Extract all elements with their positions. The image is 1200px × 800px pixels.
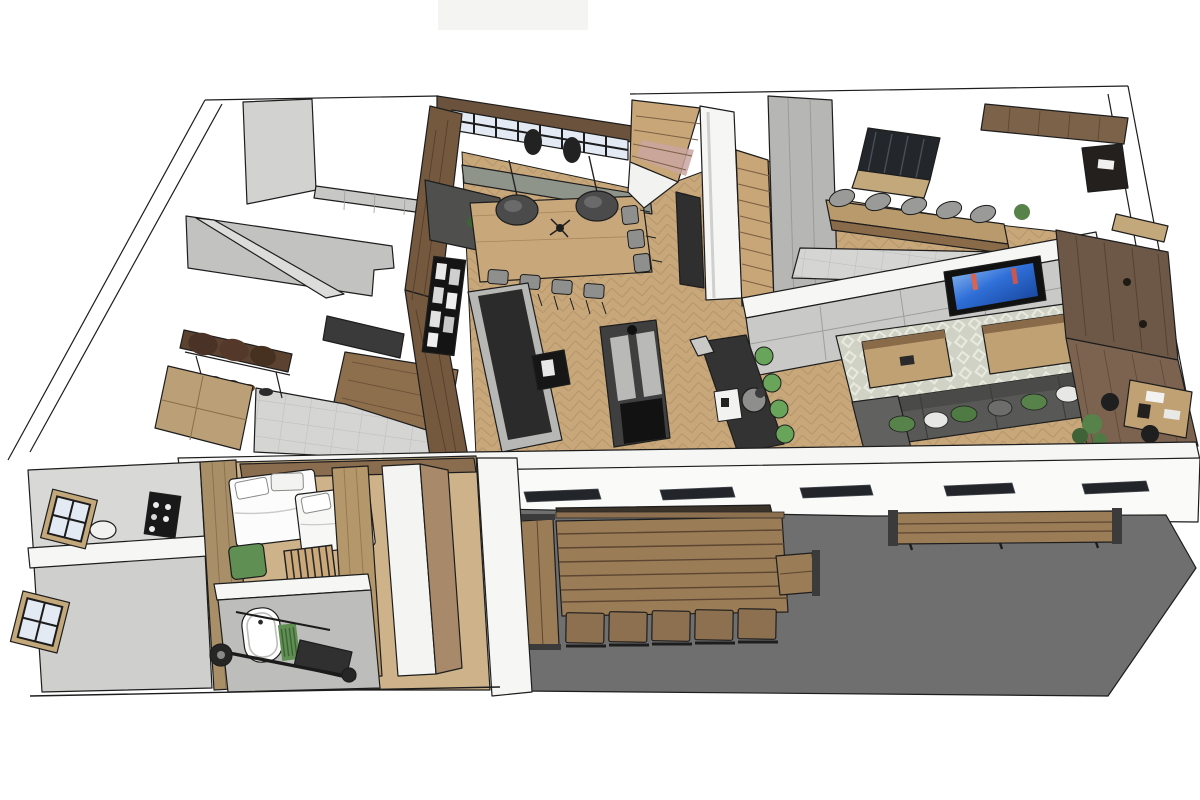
mezzanine-beam	[981, 104, 1128, 144]
garage-slabs	[186, 99, 432, 298]
mezzanine	[981, 104, 1168, 242]
wine-rack	[144, 492, 181, 538]
lower-flight	[736, 150, 774, 306]
round-table	[90, 521, 116, 539]
bedroom-block	[10, 456, 532, 696]
skylight	[852, 128, 940, 198]
terrace	[497, 505, 1196, 696]
window-chair	[563, 137, 581, 163]
plant	[1014, 204, 1030, 220]
entry-cabinet	[155, 366, 253, 450]
kids-chair	[228, 543, 267, 580]
terrace-picnic-table	[556, 512, 788, 616]
stair-side-panel	[676, 192, 704, 288]
floorplan-render	[0, 0, 1200, 800]
top-smudge	[438, 0, 588, 30]
window-chair	[524, 129, 542, 155]
entry-wall-panel	[323, 316, 404, 358]
stair-wall	[700, 106, 742, 300]
terrace-side-table	[776, 550, 820, 596]
